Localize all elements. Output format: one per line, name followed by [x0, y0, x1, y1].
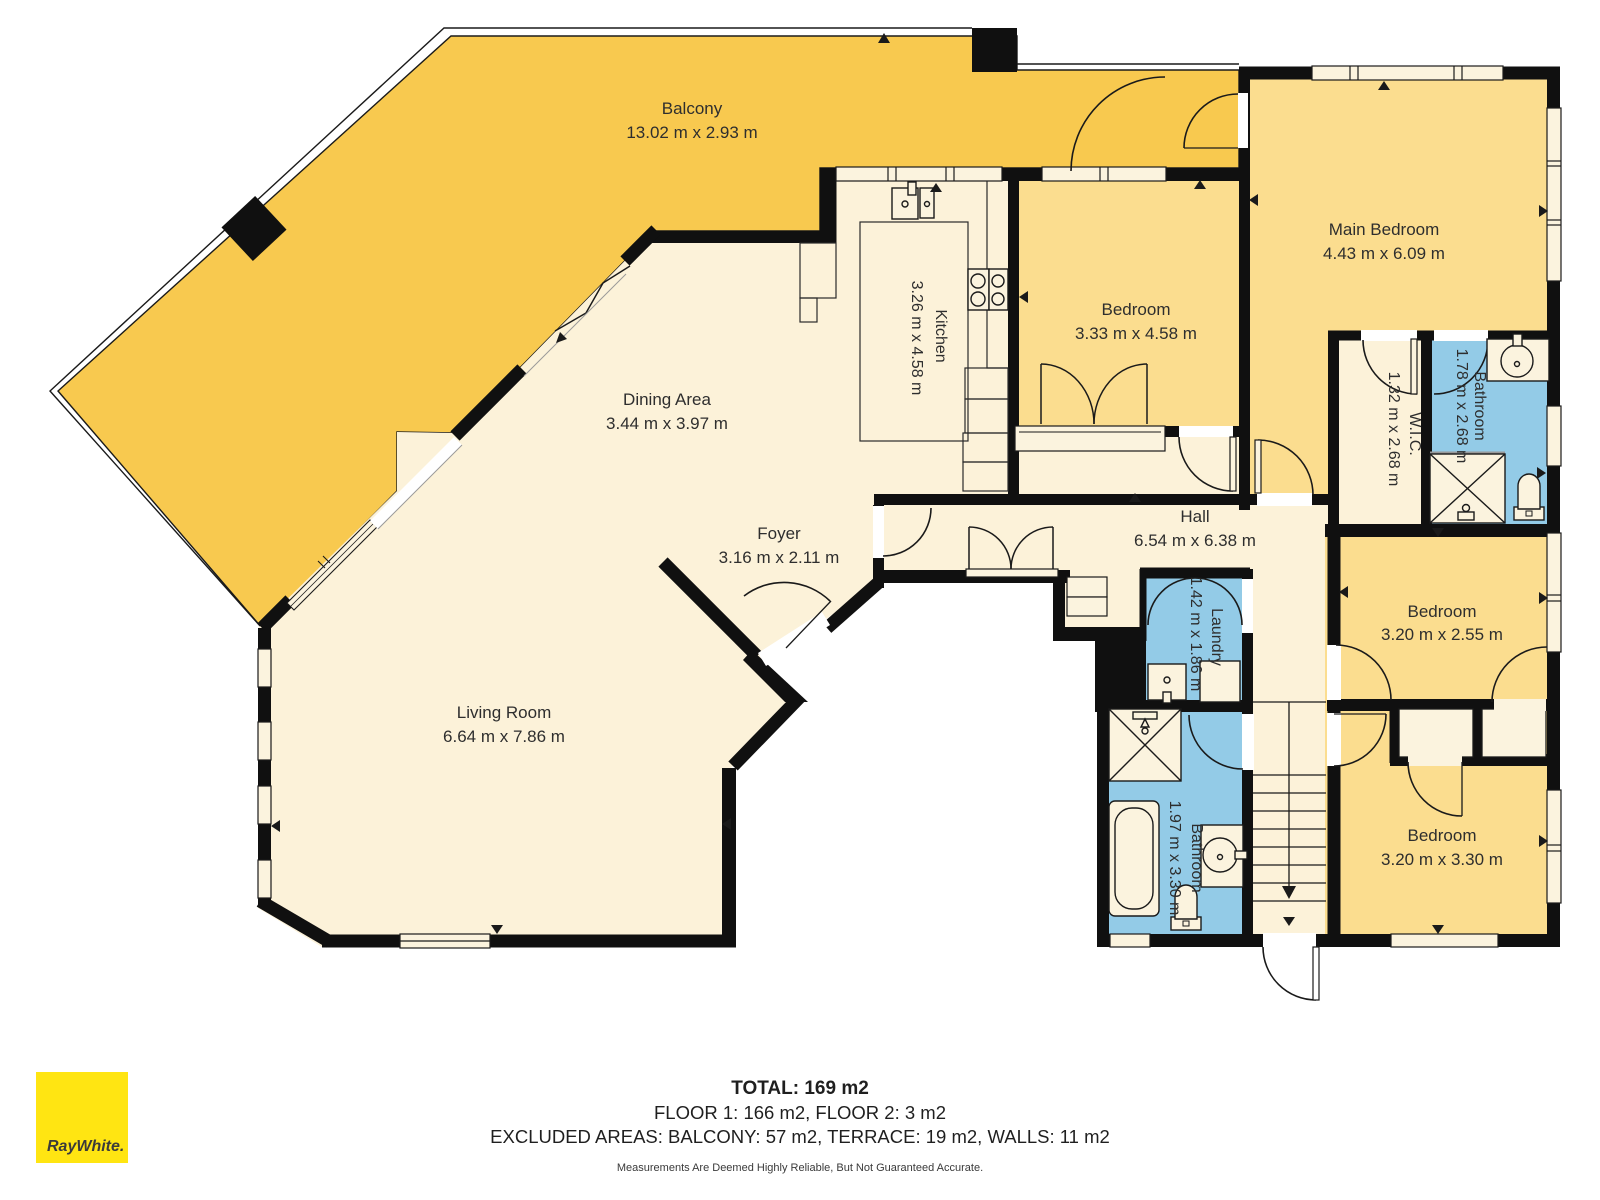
svg-text:3.44 m x 3.97 m: 3.44 m x 3.97 m: [606, 414, 728, 433]
svg-text:1.97 m x 3.30 m: 1.97 m x 3.30 m: [1166, 801, 1183, 916]
svg-text:Measurements Are Deemed Highly: Measurements Are Deemed Highly Reliable,…: [617, 1162, 983, 1174]
svg-text:Bedroom: Bedroom: [1408, 602, 1477, 621]
svg-text:6.54 m x 6.38 m: 6.54 m x 6.38 m: [1134, 531, 1256, 550]
svg-text:Dining Area: Dining Area: [623, 390, 711, 409]
svg-text:Balcony: Balcony: [662, 99, 723, 118]
svg-text:TOTAL: 169 m2: TOTAL: 169 m2: [731, 1078, 869, 1099]
svg-text:Bathroom: Bathroom: [1188, 823, 1205, 892]
svg-text:Foyer: Foyer: [757, 524, 801, 543]
svg-text:3.16 m x 2.11 m: 3.16 m x 2.11 m: [719, 548, 840, 567]
svg-text:1.32 m x 2.68 m: 1.32 m x 2.68 m: [1385, 372, 1402, 487]
svg-text:6.64 m x 7.86 m: 6.64 m x 7.86 m: [443, 727, 565, 746]
svg-text:Bathroom: Bathroom: [1471, 371, 1488, 440]
svg-text:1.42 m x 1.86 m: 1.42 m x 1.86 m: [1187, 577, 1204, 692]
svg-text:Bedroom: Bedroom: [1408, 826, 1477, 845]
svg-text:4.43 m x 6.09 m: 4.43 m x 6.09 m: [1323, 244, 1445, 263]
svg-text:RayWhite.: RayWhite.: [47, 1138, 124, 1155]
svg-text:Living Room: Living Room: [457, 703, 552, 722]
svg-text:3.20 m x 3.30 m: 3.20 m x 3.30 m: [1381, 850, 1503, 869]
svg-text:EXCLUDED AREAS: BALCONY: 57 m2: EXCLUDED AREAS: BALCONY: 57 m2, TERRACE:…: [490, 1126, 1110, 1147]
svg-text:3.33 m x 4.58 m: 3.33 m x 4.58 m: [1075, 324, 1197, 343]
svg-text:3.20 m x 2.55 m: 3.20 m x 2.55 m: [1381, 625, 1503, 644]
svg-text:Bedroom: Bedroom: [1102, 300, 1171, 319]
svg-text:13.02 m x 2.93 m: 13.02 m x 2.93 m: [626, 123, 757, 142]
svg-text:Kitchen: Kitchen: [932, 309, 949, 362]
svg-text:Main Bedroom: Main Bedroom: [1329, 220, 1440, 239]
svg-text:FLOOR 1: 166 m2, FLOOR 2: 3 m2: FLOOR 1: 166 m2, FLOOR 2: 3 m2: [654, 1102, 946, 1123]
svg-text:Hall: Hall: [1180, 507, 1209, 526]
svg-text:1.78 m x 2.68 m: 1.78 m x 2.68 m: [1453, 349, 1470, 464]
svg-text:Laundry: Laundry: [1208, 608, 1225, 666]
svg-text:W.I.C.: W.I.C.: [1406, 412, 1423, 456]
svg-text:3.26 m x 4.58 m: 3.26 m x 4.58 m: [908, 281, 925, 396]
